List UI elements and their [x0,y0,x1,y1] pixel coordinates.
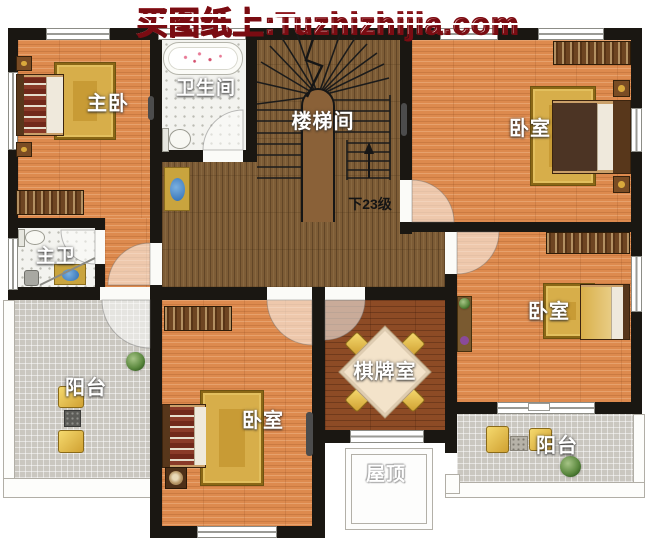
bed-pillows [46,77,63,133]
door-gap-bedroom-top-right [400,180,412,222]
balcony-door-leaf [528,403,550,411]
balcony-plant [560,456,581,477]
balcony-table [510,436,528,451]
bed-headboard [613,101,630,173]
bed-bedroom-r [580,284,630,340]
room-label-chess-room: 棋牌室 [343,362,427,382]
roof-area [345,448,433,530]
balcony-right-rail-bottom [445,482,645,498]
wardrobe-master-bedroom [16,190,84,215]
door-gap-balcony-left [100,287,150,300]
balcony-plant [126,352,145,371]
bed-headboard [163,405,170,467]
room-label-balcony-right: 阳台 [527,436,587,456]
wall-bedroom-b-east [312,287,325,538]
window-right-bedroom-tr [631,108,642,152]
balcony-left-rail-side [3,300,15,498]
bed-pillows [597,104,613,170]
balcony-chair [58,430,84,453]
window-left-masterbath [8,238,18,290]
stairs-count-note: 下23级 [344,197,396,211]
floorplan-canvas: 主卧 卫生间 楼梯间 下23级 卧室 主卫 阳台 卧室 棋牌室 卧室 阳台 屋顶… [0,0,650,538]
wall-corridor-south [8,287,457,300]
desk-plant [459,298,470,309]
door-gap-bathroom [203,150,243,162]
bed-pillows [194,407,206,465]
room-label-balcony-left: 阳台 [56,378,116,398]
wall-right [631,28,642,414]
wardrobe-bedroom-tr [553,41,631,65]
door-gap-bedroom-right [445,232,457,274]
wardrobe-bedroom-r [546,232,630,254]
door-gap-bedroom-bottom [267,287,312,300]
bed-headboard [623,285,629,339]
toilet-tank [18,229,25,247]
room-label-bedroom-bottom: 卧室 [233,411,293,431]
corridor-bath-mat [164,167,190,211]
bed-pillows [611,287,623,339]
room-label-bedroom-right: 卧室 [519,302,579,322]
toilet-bowl [25,230,45,245]
roof-side-box [445,474,460,494]
balcony-left-rail-bottom [3,478,152,498]
bed-bedroom-tr [552,100,631,174]
watermark-line [86,14,564,17]
balcony-table [64,410,81,427]
desk-flower [460,336,469,345]
balcony-chair [486,426,509,453]
room-label-bedroom-top-right: 卧室 [500,119,560,139]
watermark-line [86,23,564,25]
window-right-bedroom-r [631,256,642,312]
window-bottom-bedroom-b [197,526,277,538]
bed-blanket [170,407,194,465]
nightstand [16,142,32,157]
wall-master-south [8,218,105,228]
nightstand [16,56,32,71]
bedside-pouf [165,467,187,489]
bed-bedroom-b [162,404,206,468]
masterbath-mat [54,264,86,285]
door-gap-master-bath [95,230,105,264]
bed-blanket [24,77,46,133]
wardrobe-bedroom-b [164,306,232,331]
watermark-title: 买图纸上:Tuzhizhijia.com [90,0,566,34]
rug-bedroom-b [200,390,264,486]
toilet-bowl [169,129,191,149]
room-label-roof: 屋顶 [356,465,416,484]
masterbath-sink [24,270,39,286]
room-label-bathroom: 卫生间 [164,79,248,98]
nightstand [613,176,630,193]
bed-master-bedroom [16,74,64,136]
wall-bedroom-b-west [150,287,162,538]
door-leaf-master [148,96,154,120]
room-label-stair-hall: 楼梯间 [281,112,365,132]
toilet-tank [162,128,169,152]
door-leaf-stair-wall [401,103,407,136]
door-gap-chess-room [325,287,365,300]
bed-blanket [581,287,611,339]
door-gap-master-bedroom [150,243,162,285]
bed-headboard [17,75,24,135]
room-label-master-bedroom: 主卧 [78,94,138,114]
door-leaf-bedroom-b [306,412,313,456]
bathtub [163,42,243,75]
nightstand [613,80,630,97]
room-label-master-bath: 主卫 [26,247,86,266]
window-chess-roof [350,430,424,443]
